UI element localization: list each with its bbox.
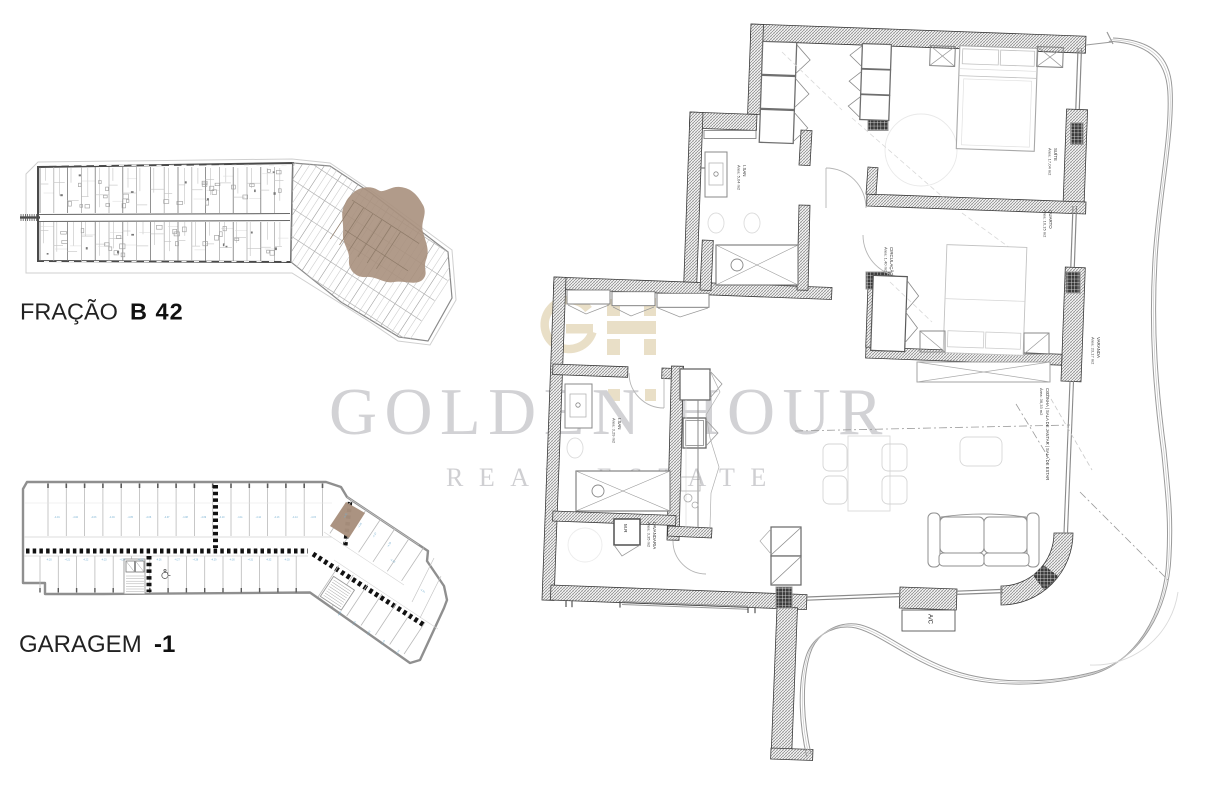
svg-text:-4.30: -4.30	[229, 559, 235, 562]
svg-text:SUÍTE: SUÍTE	[1053, 148, 1058, 161]
svg-text:-4.20: -4.20	[46, 559, 52, 562]
svg-text:-4.12: -4.12	[256, 516, 262, 519]
svg-text:Área: 3,29 m2: Área: 3,29 m2	[612, 418, 617, 444]
svg-text:I.SAN: I.SAN	[617, 418, 622, 429]
svg-text:-4.01: -4.01	[54, 516, 60, 519]
svg-text:-4.15: -4.15	[310, 516, 316, 519]
svg-text:LAVANDARIA: LAVANDARIA	[652, 522, 657, 549]
svg-text:M.R: M.R	[623, 524, 628, 533]
svg-text:-4.22: -4.22	[83, 559, 89, 562]
svg-text:-4.05: -4.05	[127, 516, 133, 519]
svg-text:-4.31: -4.31	[248, 559, 254, 562]
svg-text:Área: 10,15 m2: Área: 10,15 m2	[1043, 210, 1048, 238]
svg-text:-4.28: -4.28	[193, 559, 199, 562]
svg-text:CIRCULAÇÃO: CIRCULAÇÃO	[889, 247, 894, 276]
svg-text:GARAGEM: GARAGEM	[19, 631, 142, 658]
svg-text:-4.32: -4.32	[266, 559, 272, 562]
svg-text:-4.10: -4.10	[219, 516, 225, 519]
svg-text:I.SAN: I.SAN	[742, 165, 747, 176]
svg-text:-4.25: -4.25	[138, 559, 144, 562]
svg-text:QUARTO: QUARTO	[1048, 210, 1053, 229]
svg-text:Área: 3,35 m2: Área: 3,35 m2	[647, 522, 652, 548]
svg-text:FRAÇÃO: FRAÇÃO	[20, 299, 118, 325]
svg-text:-1: -1	[154, 631, 175, 658]
svg-text:A/C: A/C	[927, 614, 933, 625]
svg-text:-4.23: -4.23	[101, 559, 107, 562]
svg-text:Área: 1,40 m2: Área: 1,40 m2	[884, 247, 889, 273]
svg-text:Área: 36,33 m2: Área: 36,33 m2	[1039, 388, 1044, 416]
svg-text:-4.09: -4.09	[201, 516, 207, 519]
svg-text:-4.11: -4.11	[237, 516, 243, 519]
svg-text:-4.06: -4.06	[146, 516, 152, 519]
svg-text:COZINHA | SALA DE JANTAR | SAL: COZINHA | SALA DE JANTAR | SALA DE ESTAR	[1045, 388, 1050, 480]
svg-text:-4.13: -4.13	[274, 516, 280, 519]
svg-text:-4.24: -4.24	[119, 559, 125, 562]
svg-text:-4.07: -4.07	[164, 516, 170, 519]
svg-text:-4.02: -4.02	[73, 516, 79, 519]
svg-text:-4.21: -4.21	[65, 559, 71, 562]
svg-text:-4.27: -4.27	[174, 559, 180, 562]
svg-text:B 42: B 42	[130, 299, 184, 325]
svg-text:-4.08: -4.08	[182, 516, 188, 519]
svg-text:Área: 23,17 m2: Área: 23,17 m2	[1091, 337, 1096, 365]
svg-text:GOLDEN HOUR: GOLDEN HOUR	[329, 376, 890, 449]
svg-text:VARANDA: VARANDA	[1096, 337, 1101, 358]
svg-text:Área: 17,04 m2: Área: 17,04 m2	[1048, 148, 1053, 176]
svg-text:Área: 5,04 m2: Área: 5,04 m2	[737, 165, 742, 191]
svg-text:-4.04: -4.04	[109, 516, 115, 519]
svg-text:-4.29: -4.29	[211, 559, 217, 562]
svg-text:-4.26: -4.26	[156, 559, 162, 562]
svg-text:-4.14: -4.14	[292, 516, 298, 519]
svg-text:-4.03: -4.03	[91, 516, 97, 519]
svg-text:-4.33: -4.33	[284, 559, 290, 562]
